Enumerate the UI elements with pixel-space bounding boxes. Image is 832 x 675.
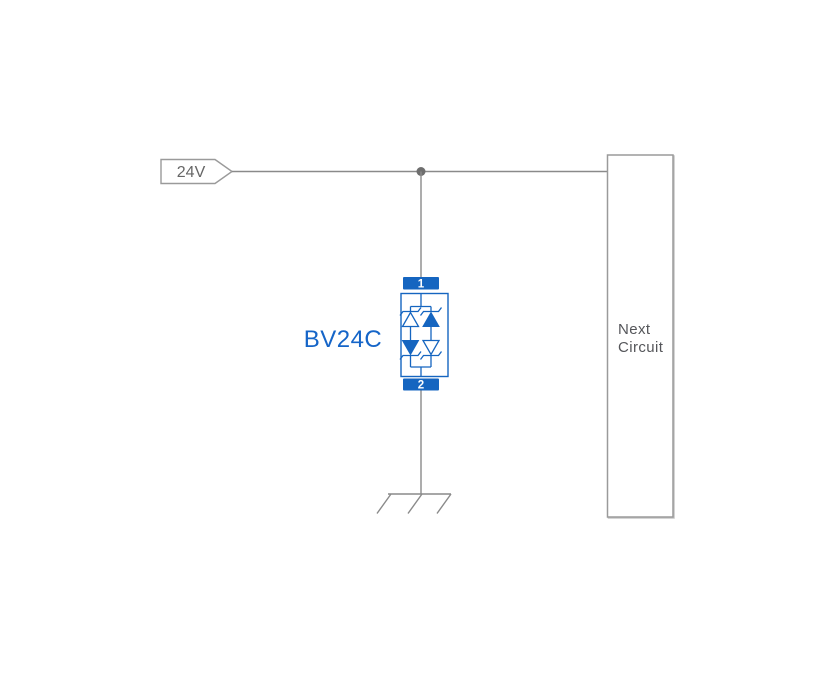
schematic-canvas: 24V 1 (0, 0, 832, 675)
circuit-diagram: 24V 1 (0, 0, 832, 675)
supply-flag: 24V (161, 160, 232, 184)
tvs-component: 1 (400, 277, 448, 392)
next-circuit-block: Next Circuit (608, 155, 674, 517)
terminal-2-label: 2 (418, 380, 424, 392)
terminal-1-label: 1 (418, 279, 425, 291)
supply-voltage-label: 24V (177, 164, 206, 181)
next-circuit-label-line2: Circuit (618, 339, 664, 356)
component-name-label: BV24C (304, 326, 383, 353)
next-circuit-label-line1: Next (618, 321, 651, 338)
ground-icon (377, 494, 451, 514)
